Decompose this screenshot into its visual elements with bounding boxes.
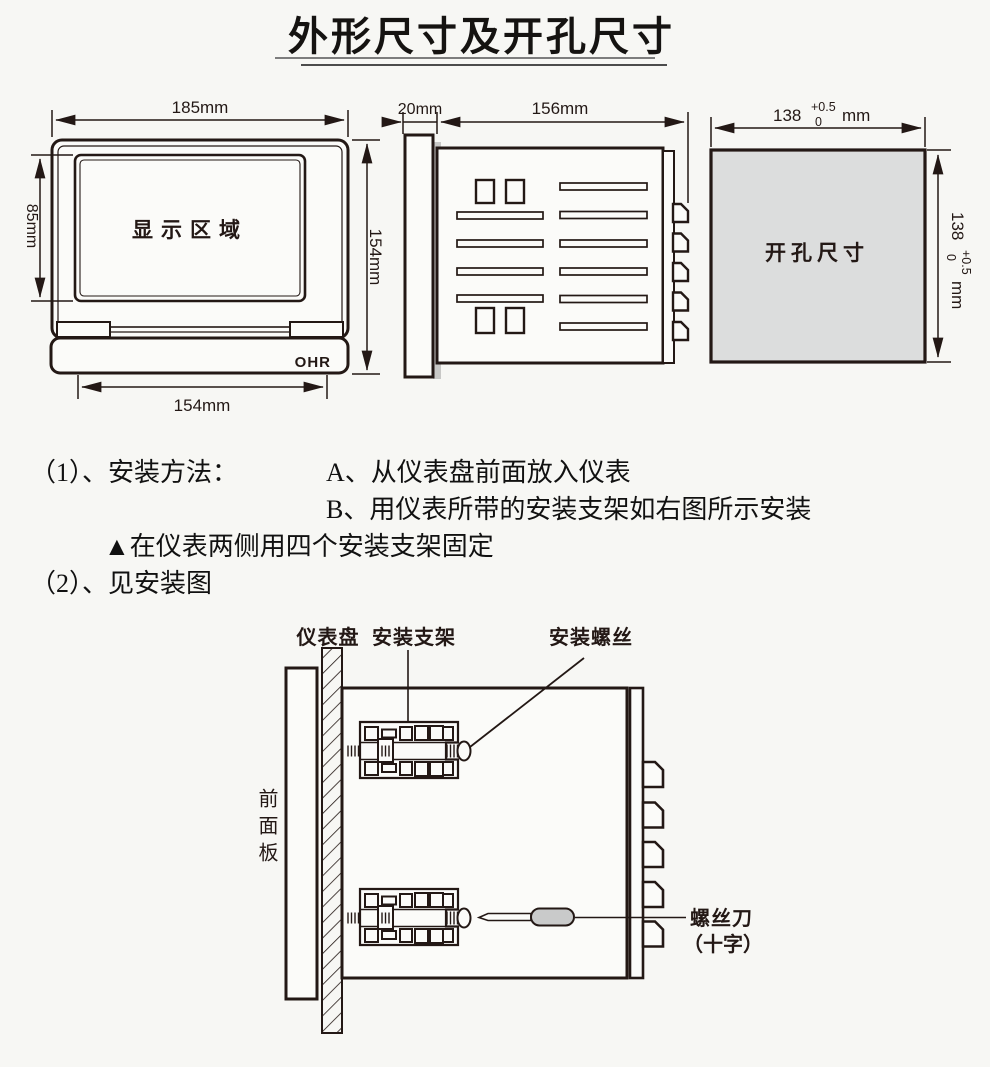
cutout-height-dim: 138 +0.5 0 mm (944, 212, 973, 309)
terminal-tab (673, 234, 688, 252)
front-width-dim: 185mm (172, 98, 229, 117)
terminal-tab (673, 204, 688, 222)
installation-diagram: 仪表盘 安装支架 安装螺丝 螺丝刀 （十字） (286, 625, 763, 1033)
terminal-tab (643, 803, 663, 828)
screwdriver-label: 螺丝刀 (690, 906, 753, 930)
cutout-dim-unit: mm (842, 106, 870, 125)
terminal-tab (673, 322, 688, 340)
bezel-dim: 20mm (398, 101, 442, 118)
display-label: 显示区域 (132, 218, 248, 242)
terminal-tab (643, 922, 663, 947)
terminal-tab (643, 762, 663, 787)
cutout-label: 开孔尺寸 (765, 241, 869, 265)
note-item2: （2）、见安装图 (30, 563, 212, 600)
side-bezel (405, 135, 433, 377)
screw-label: 安装螺丝 (549, 625, 633, 649)
panel-label: 仪表盘 (296, 625, 360, 649)
cutout-width-dim: 138 +0.5 0 mm (773, 100, 870, 129)
front-panel (286, 668, 317, 999)
front-panel-label: 前面板 (252, 788, 281, 869)
screwdriver-handle (531, 909, 574, 926)
manual-page: { "page": { "title": "外形尺寸及开孔尺寸", "color… (0, 0, 990, 1067)
cutout-tol-lower: 0 (815, 115, 822, 129)
screwdriver-type-label: （十字） (683, 932, 763, 956)
side-view: 20mm 156mm (386, 99, 688, 379)
hinge-left (57, 322, 110, 337)
note-step-a: A、从仪表盘前面放入仪表 (326, 452, 631, 489)
depth-dim: 156mm (532, 99, 589, 118)
cutout-dim-unit: mm (948, 281, 967, 309)
panel-hatched (322, 648, 342, 1033)
front-bottom-width-dim: 154mm (174, 396, 231, 415)
note-warning: ▲在仪表两侧用四个安装支架固定 (104, 526, 494, 563)
terminal-tab (643, 842, 663, 867)
cutout-dim-value: 138 (773, 106, 801, 125)
cutout-tol-upper: +0.5 (811, 100, 836, 114)
brand-logo: OHR (295, 354, 331, 371)
terminal-tab (643, 882, 663, 907)
cutout-view: 138 +0.5 0 mm 开孔尺寸 138 +0.5 0 mm (711, 100, 973, 362)
note-item1: （1）、安装方法： (30, 452, 238, 489)
hinge-right (290, 322, 343, 337)
terminal-tab (673, 263, 688, 281)
bracket-label: 安装支架 (372, 625, 456, 649)
front-view: 185mm 显示区域 OHR 85mm 154mm 154mm (23, 98, 385, 415)
screwdriver-blade (479, 914, 531, 921)
terminal-tab (673, 293, 688, 311)
cutout-tol-lower: 0 (944, 254, 958, 261)
cutout-dim-value: 138 (948, 212, 967, 240)
cutout-tol-upper: +0.5 (959, 250, 973, 275)
terminal-bar (630, 688, 643, 978)
note-step-b: B、用仪表所带的安装支架如右图所示安装 (326, 489, 811, 526)
display-height-dim: 85mm (23, 204, 40, 248)
front-height-dim: 154mm (366, 229, 385, 286)
